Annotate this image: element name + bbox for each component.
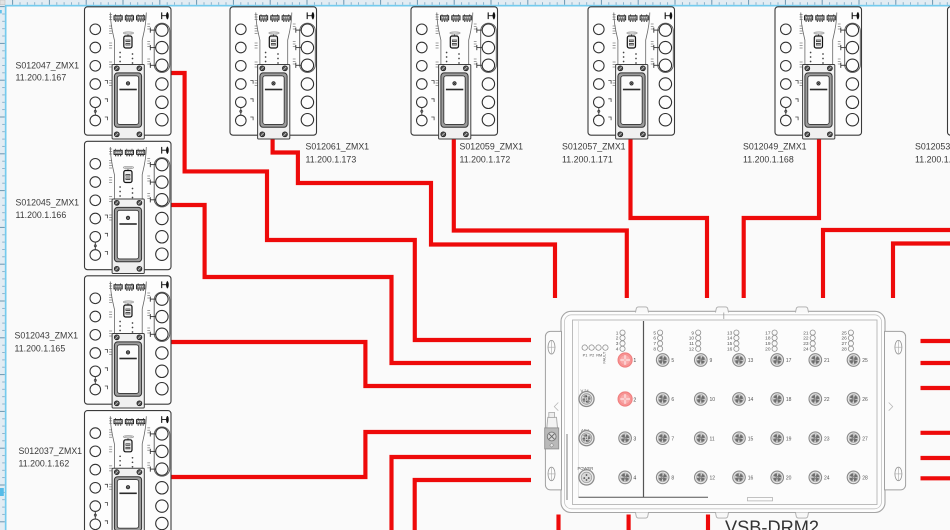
svg-text:17: 17	[786, 358, 792, 364]
svg-text:21: 21	[803, 330, 809, 336]
svg-text:10: 10	[689, 336, 695, 342]
svg-text:23: 23	[824, 436, 830, 442]
svg-text:1: 1	[616, 330, 619, 336]
svg-text:11.200.1.171: 11.200.1.171	[562, 154, 613, 164]
svg-text:11.200.1.167: 11.200.1.167	[16, 73, 67, 83]
svg-text:15: 15	[727, 341, 733, 347]
svg-text:26: 26	[862, 397, 868, 403]
svg-text:10: 10	[710, 397, 716, 403]
svg-text:5: 5	[671, 358, 674, 364]
svg-text:23: 23	[803, 341, 809, 347]
svg-text:VSB-DRM2: VSB-DRM2	[725, 518, 819, 530]
svg-text:11.200.1.166: 11.200.1.166	[16, 210, 67, 220]
svg-text:24: 24	[803, 347, 809, 353]
svg-text:3: 3	[633, 436, 636, 442]
svg-text:19: 19	[786, 436, 792, 442]
svg-text:11: 11	[689, 341, 694, 347]
svg-text:18: 18	[765, 336, 771, 342]
svg-text:24: 24	[824, 476, 830, 482]
svg-text:S012045_ZMX1: S012045_ZMX1	[16, 198, 80, 208]
svg-text:21: 21	[824, 358, 830, 364]
svg-text:22: 22	[824, 397, 830, 403]
svg-text:27: 27	[862, 436, 868, 442]
svg-text:19: 19	[765, 341, 771, 347]
svg-text:12: 12	[710, 476, 716, 482]
svg-text:26: 26	[841, 336, 847, 342]
svg-text:20: 20	[786, 476, 792, 482]
svg-text:13: 13	[748, 358, 754, 364]
svg-text:11.200.1.169: 11.200.1.169	[915, 154, 950, 164]
svg-text:7: 7	[671, 436, 674, 442]
svg-text:2: 2	[633, 398, 636, 404]
svg-text:5: 5	[653, 330, 656, 336]
svg-text:6: 6	[653, 336, 656, 342]
svg-text:3: 3	[616, 341, 619, 347]
svg-text:18: 18	[786, 397, 792, 403]
svg-text:S012061_ZMX1: S012061_ZMX1	[306, 142, 370, 152]
svg-text:16: 16	[748, 476, 754, 482]
svg-text:P2: P2	[590, 352, 595, 357]
svg-text:25: 25	[841, 330, 847, 336]
svg-text:7: 7	[653, 341, 656, 347]
svg-text:22: 22	[803, 336, 809, 342]
svg-text:6: 6	[671, 397, 674, 403]
svg-text:11.200.1.162: 11.200.1.162	[19, 458, 70, 468]
svg-text:14: 14	[727, 336, 733, 342]
svg-text:13: 13	[727, 330, 733, 336]
svg-text:1: 1	[633, 358, 636, 364]
svg-text:S012057_ZMX1: S012057_ZMX1	[562, 142, 626, 152]
svg-text:14: 14	[748, 397, 754, 403]
svg-text:S012043_ZMX1: S012043_ZMX1	[15, 331, 79, 341]
svg-text:P1: P1	[583, 352, 588, 357]
svg-text:16: 16	[727, 347, 733, 353]
svg-text:15: 15	[748, 436, 754, 442]
svg-text:28: 28	[841, 347, 847, 353]
svg-text:S012047_ZMX1: S012047_ZMX1	[16, 60, 80, 70]
svg-text:11.200.1.168: 11.200.1.168	[743, 154, 794, 164]
svg-text:S012059_ZMX1: S012059_ZMX1	[460, 142, 524, 152]
svg-text:11.200.1.173: 11.200.1.173	[306, 154, 357, 164]
svg-text:S012053_ZMX1: S012053_ZMX1	[915, 142, 950, 152]
svg-text:12: 12	[689, 347, 695, 353]
svg-text:4: 4	[633, 476, 636, 482]
svg-text:11.200.1.172: 11.200.1.172	[460, 154, 511, 164]
svg-text:S012037_ZMX1: S012037_ZMX1	[19, 446, 83, 456]
svg-text:17: 17	[765, 330, 771, 336]
svg-text:8: 8	[671, 476, 674, 482]
svg-text:9: 9	[691, 330, 694, 336]
svg-text:S012049_ZMX1: S012049_ZMX1	[743, 142, 807, 152]
svg-text:25: 25	[862, 358, 868, 364]
svg-text:2: 2	[616, 336, 619, 342]
svg-text:11.200.1.165: 11.200.1.165	[15, 343, 66, 353]
svg-text:28: 28	[862, 476, 868, 482]
svg-text:8: 8	[653, 347, 656, 353]
svg-text:27: 27	[841, 341, 847, 347]
svg-text:FAULT: FAULT	[601, 351, 606, 363]
svg-text:11: 11	[710, 436, 715, 442]
svg-text:9: 9	[710, 358, 713, 364]
svg-text:4: 4	[616, 347, 619, 353]
svg-text:20: 20	[765, 347, 771, 353]
